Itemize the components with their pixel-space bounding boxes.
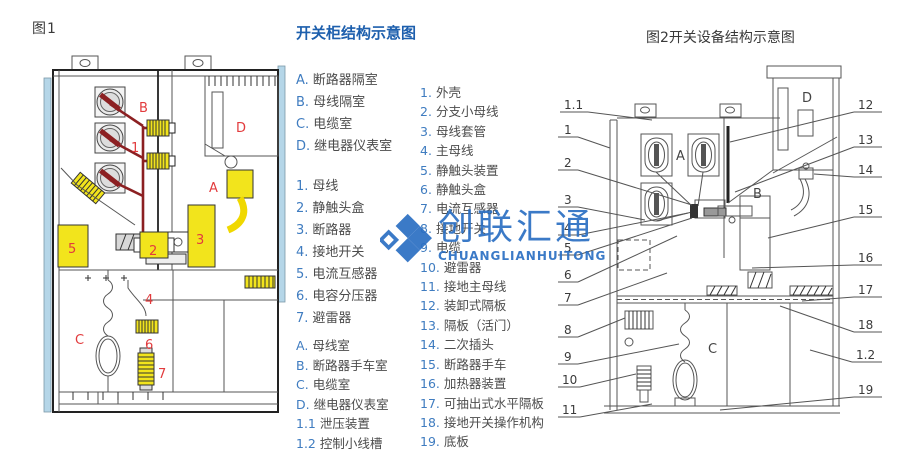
fig1-mark-7: 7 [158,367,166,382]
fig2-callout-14: 14 [858,163,873,177]
fig1-lifting-lugs [72,56,211,71]
legend-item: 3.母线套管 [420,122,544,141]
fig2-cable [673,303,697,406]
legend-item: 9.电缆 [420,238,544,257]
legend-item: 7.避雷器 [296,308,377,330]
fig1-vt-block [227,170,253,198]
fig2-cabinet-outline [604,78,840,413]
fig2-callout-5: 5 [564,241,572,255]
fig1-mark-3: 3 [196,233,204,248]
legend-item: A.断路器隔室 [296,70,392,92]
legend-item: 5.静触头装置 [420,161,544,180]
fig2-callout-4: 4 [564,221,572,235]
legend-item: 18.接地开关操作机构 [420,413,544,432]
fig2-callout-1.2: 1.2 [856,348,875,362]
legend-item: 6.静触头盒 [420,180,544,199]
fig2-breaker-handcart [740,196,772,288]
fig1-mark-5: 5 [68,242,76,257]
legend-item: 4.接地开关 [296,242,377,264]
legend-item: 2.分支小母线 [420,102,544,121]
fig2-callout-8: 8 [564,323,572,337]
fig2-arrester [637,366,651,402]
legend-item: 1.2控制小线槽 [296,434,389,454]
legend-item: 14.二次插头 [420,335,544,354]
fig2-earthing-switch [625,311,653,346]
legend-compartments: A.断路器隔室B.母线隔室C.电缆室D.继电器仪表室 [296,70,392,158]
fig2-callout-10: 10 [562,373,577,387]
fig2-callout-3: 3 [564,193,572,207]
fig2-letter-C: C [708,342,717,357]
fig1-mark-2: 2 [149,244,157,259]
fig2-callout-17: 17 [858,283,873,297]
fig1-right-panel [278,66,285,302]
fig2-title: 图2开关设备结构示意图 [646,27,795,47]
fig2-letter-B: B [753,187,762,202]
fig2-callout-2: 2 [564,156,572,170]
fig2-contact-assembly [656,172,752,223]
legend-parts2: 1.外壳2.分支小母线3.母线套管4.主母线5.静触头装置6.静触头盒7.电流互… [420,83,544,452]
legend-item: 1.母线 [296,176,377,198]
fig1-arrester [138,348,154,390]
fig2-callout-1: 1 [564,123,572,137]
fig2-horizontal-partition [617,286,833,303]
fig1-mark-C: C [75,333,84,348]
fig1-mark-D: D [236,121,246,136]
fig1-caption: 图1 [32,18,57,38]
legend-item: D.继电器仪表室 [296,395,389,415]
fig2-callout-12: 12 [858,98,873,112]
legend-item: D.继电器仪表室 [296,136,392,158]
fig2-callout-16: 16 [858,251,873,265]
legend-item: C.电缆室 [296,114,392,136]
figure2-diagram: A B C D 1.1 1 2 3 4 5 6 7 8 9 10 [552,58,897,426]
fig2-letter-D: D [802,91,812,106]
legend-item: 16.加热器装置 [420,374,544,393]
fig2-callout-9: 9 [564,350,572,364]
fig2-callout-15: 15 [858,203,873,217]
fig2-dashed-panel [618,240,650,270]
legend-item: 1.1泄压装置 [296,414,389,434]
legend-item: 7.电流互感器 [420,199,544,218]
fig1-mark-B: B [139,101,148,116]
legend-item: 13.隔板（活门） [420,316,544,335]
legend-item: 2.静触头盒 [296,198,377,220]
legend-item: 15.断路器手车 [420,355,544,374]
legend-item: A.母线室 [296,336,389,356]
legend-rooms: A.母线室B.断路器手车室C.电缆室D.继电器仪表室1.1泄压装置1.2控制小线… [296,336,389,453]
legend-item: 11.接地主母线 [420,277,544,296]
fig2-callouts-right: 12 13 14 15 16 17 18 1.2 19 [720,98,882,410]
legend-item: 3.断路器 [296,220,377,242]
fig1-mark-6: 6 [145,338,153,353]
fig2-letter-A: A [676,149,685,164]
fig2-lifting-lugs [635,104,741,117]
fig2-callout-19: 19 [858,383,873,397]
fig2-callout-18: 18 [858,318,873,332]
legend-item: 17.可抽出式水平隔板 [420,394,544,413]
legend-item: 4.主母线 [420,141,544,160]
legend-title: 开关柜结构示意图 [296,22,416,43]
fig1-mark-1: 1 [131,141,139,156]
fig2-callout-6: 6 [564,268,572,282]
page: 图1 [0,0,900,474]
legend-item: 19.底板 [420,432,544,451]
legend-item: B.断路器手车室 [296,356,389,376]
legend-item: 8.接地开关 [420,219,544,238]
fig2-secondary-plug [791,163,813,216]
legend-item: B.母线隔室 [296,92,392,114]
fig2-callout-13: 13 [858,133,873,147]
legend-item: 10.避雷器 [420,258,544,277]
fig2-callout-1.1: 1.1 [564,98,583,112]
legend-item: 1.外壳 [420,83,544,102]
figure1-diagram: B 1 D A 5 2 3 4 C 6 7 [28,48,290,420]
fig2-callout-7: 7 [564,291,572,305]
fig1-mark-4: 4 [145,293,153,308]
legend-item: 6.电容分压器 [296,286,377,308]
fig1-left-panel [44,78,51,412]
legend-item: 5.电流互感器 [296,264,377,286]
legend-item: 12.装卸式隔板 [420,296,544,315]
fig2-callout-11: 11 [562,403,577,417]
fig1-capacitor-divider [136,320,158,333]
fig1-mark-A: A [209,181,218,196]
legend-item: C.电缆室 [296,375,389,395]
legend-parts1: 1.母线2.静触头盒3.断路器4.接地开关5.电流互感器6.电容分压器7.避雷器 [296,176,377,330]
